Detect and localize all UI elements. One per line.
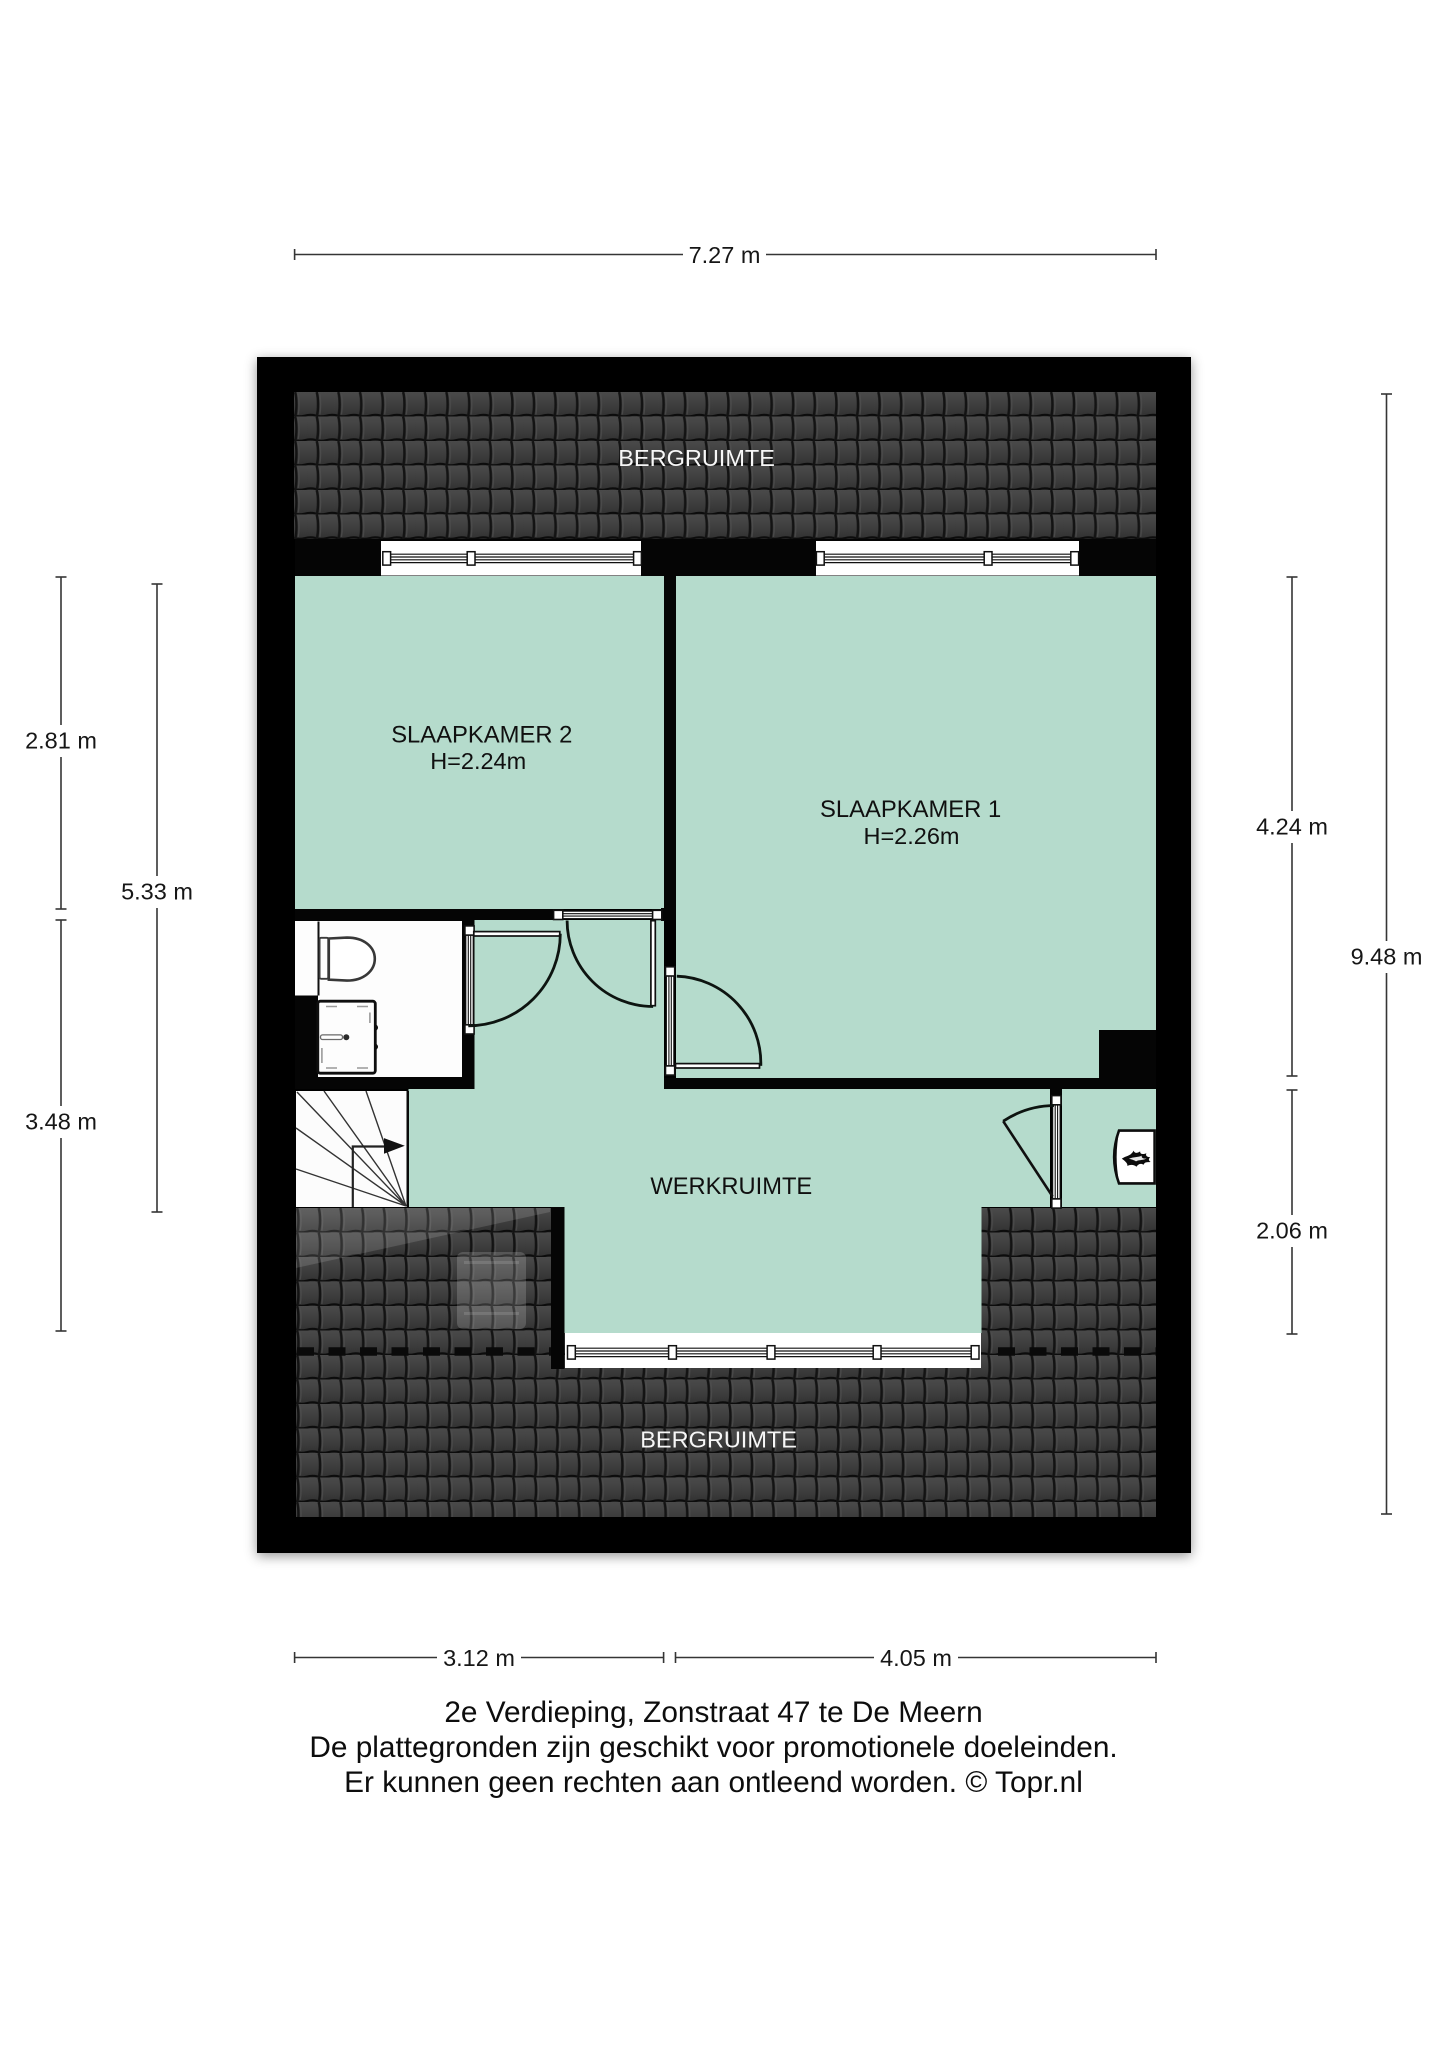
svg-text:7.27 m: 7.27 m [689,242,761,268]
svg-text:3.12 m: 3.12 m [443,1645,515,1671]
svg-text:5.33 m: 5.33 m [121,879,193,905]
svg-text:2e Verdieping, Zonstraat 47 te: 2e Verdieping, Zonstraat 47 te De Meern [444,1696,982,1729]
svg-text:2.81 m: 2.81 m [25,728,97,754]
svg-text:4.24 m: 4.24 m [1256,814,1328,840]
svg-text:2.06 m: 2.06 m [1256,1218,1328,1244]
svg-text:BERGRUIMTE: BERGRUIMTE [618,445,775,471]
svg-text:De plattegronden zijn geschikt: De plattegronden zijn geschikt voor prom… [309,1731,1117,1764]
svg-text:H=2.24m: H=2.24m [430,748,526,774]
svg-text:WERKRUIMTE: WERKRUIMTE [650,1174,812,1200]
svg-text:SLAAPKAMER 2: SLAAPKAMER 2 [391,721,572,748]
svg-text:BERGRUIMTE: BERGRUIMTE [640,1426,797,1452]
svg-text:4.05 m: 4.05 m [880,1645,952,1671]
svg-text:3.48 m: 3.48 m [25,1109,97,1135]
svg-text:SLAAPKAMER 1: SLAAPKAMER 1 [820,796,1001,823]
svg-text:H=2.26m: H=2.26m [863,823,959,849]
svg-text:Er kunnen geen rechten aan ont: Er kunnen geen rechten aan ontleend word… [344,1766,1083,1799]
svg-text:9.48 m: 9.48 m [1351,944,1423,970]
